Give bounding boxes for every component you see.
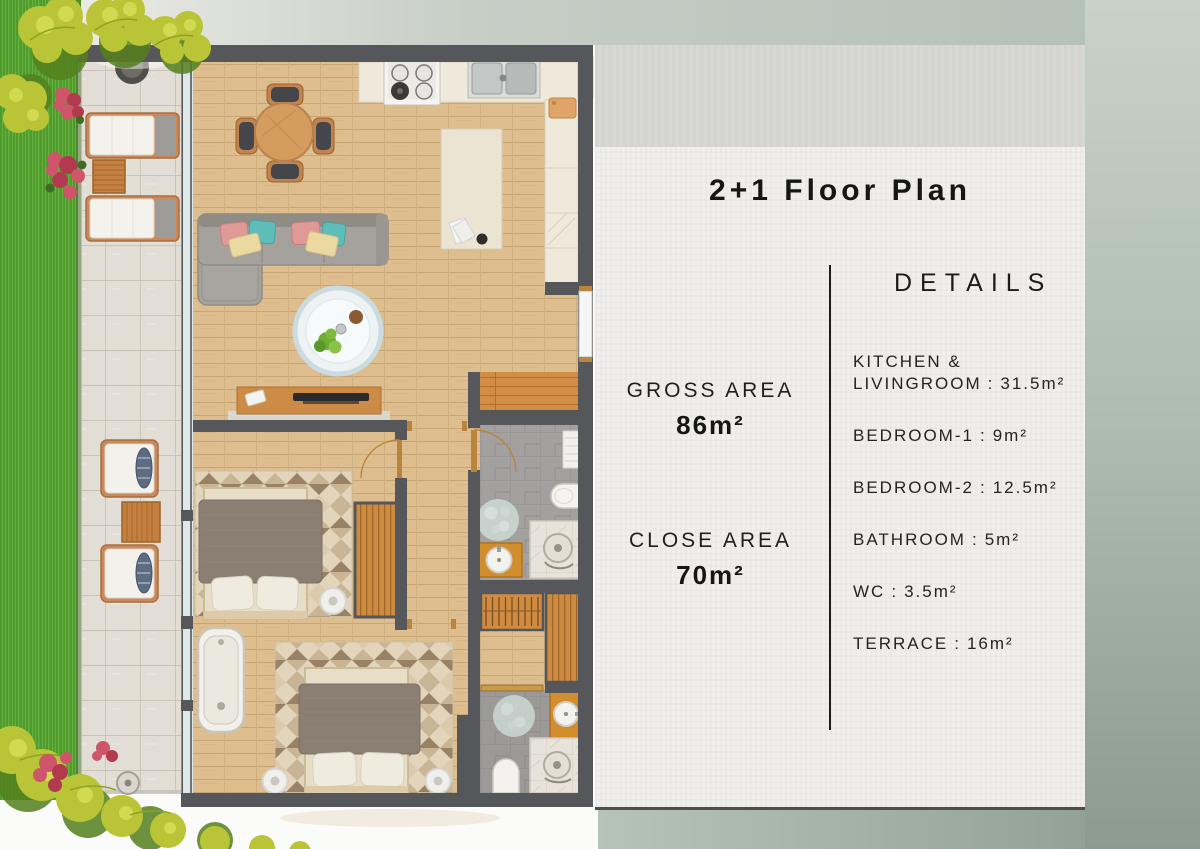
bathtub bbox=[198, 628, 244, 732]
room-value: 9m² bbox=[993, 426, 1028, 445]
glass-wall bbox=[181, 62, 193, 793]
close-area-value: 70m² bbox=[603, 560, 818, 591]
room-row-wc: WC:3.5m² bbox=[853, 581, 1078, 603]
room-row-bathroom: BATHROOM:5m² bbox=[853, 529, 1078, 551]
armchair bbox=[101, 440, 158, 497]
room-label: BATHROOM bbox=[853, 530, 966, 549]
separator: : bbox=[891, 582, 898, 601]
details-panel: 2+1 Floor Plan DETAILS GROSS AREA 86m² C… bbox=[595, 45, 1085, 810]
room-row-terrace: TERRACE:16m² bbox=[853, 633, 1078, 655]
room-value: 3.5m² bbox=[904, 582, 957, 601]
pillow bbox=[256, 576, 299, 611]
entry-door bbox=[579, 291, 592, 357]
sun-lounger bbox=[86, 196, 179, 241]
room-value: 31.5m² bbox=[1000, 374, 1065, 393]
close-area-label: CLOSE AREA bbox=[603, 529, 818, 553]
kitchen-counter-right bbox=[545, 100, 578, 292]
bedroom-1-door bbox=[397, 440, 402, 478]
separator: : bbox=[988, 374, 995, 393]
separator: : bbox=[972, 530, 979, 549]
floor-plan-page: 2+1 Floor Plan DETAILS GROSS AREA 86m² C… bbox=[0, 0, 1200, 849]
room-value: 12.5m² bbox=[993, 478, 1058, 497]
vertical-divider bbox=[829, 265, 831, 730]
separator: : bbox=[980, 426, 987, 445]
shadow-smudge bbox=[280, 809, 500, 827]
gross-area-value: 86m² bbox=[603, 410, 818, 441]
living-rug bbox=[295, 288, 381, 374]
armchair bbox=[101, 545, 158, 602]
toilet-icon bbox=[493, 759, 519, 793]
bathroom-door bbox=[471, 430, 477, 472]
room-label: BEDROOM-2 bbox=[853, 478, 974, 497]
separator: : bbox=[954, 634, 961, 653]
pillow bbox=[211, 576, 254, 612]
coffee-table bbox=[122, 502, 160, 542]
kitchen-sink bbox=[468, 60, 540, 98]
page-title: 2+1 Floor Plan bbox=[595, 174, 1085, 208]
stove-icon bbox=[384, 57, 440, 105]
room-label: WC bbox=[853, 582, 885, 601]
room-row-bedroom-2: BEDROOM-2:12.5m² bbox=[853, 477, 1078, 499]
room-label: KITCHEN & LIVINGROOM bbox=[853, 352, 982, 393]
tv-console bbox=[228, 387, 390, 420]
room-row-bedroom-1: BEDROOM-1:9m² bbox=[853, 425, 1078, 447]
room-value: 5m² bbox=[985, 530, 1020, 549]
cutting-board bbox=[549, 98, 576, 118]
bedroom-1-bed bbox=[195, 471, 352, 619]
tv-icon bbox=[293, 393, 369, 401]
bedroom-2-bed bbox=[263, 642, 454, 794]
panel-top-band bbox=[595, 45, 1085, 147]
room-row-kitchen-livingroom: KITCHEN & LIVINGROOM:31.5m² bbox=[853, 351, 1078, 395]
close-area-block: CLOSE AREA 70m² bbox=[603, 529, 818, 591]
entry-hall-floor bbox=[480, 372, 578, 412]
room-label: TERRACE bbox=[853, 634, 948, 653]
gross-area-block: GROSS AREA 86m² bbox=[603, 379, 818, 441]
bathroom-sink bbox=[477, 543, 522, 577]
bedroom-1-wardrobe bbox=[355, 503, 400, 617]
pillow bbox=[312, 752, 357, 787]
wc-sliding-door bbox=[481, 685, 543, 691]
room-value: 16m² bbox=[967, 634, 1014, 653]
pebble-mat bbox=[477, 499, 519, 541]
room-label: BEDROOM-1 bbox=[853, 426, 974, 445]
room-area-list: KITCHEN & LIVINGROOM:31.5m² BEDROOM-1:9m… bbox=[853, 351, 1078, 655]
details-heading: DETAILS bbox=[894, 269, 1052, 298]
sun-lounger bbox=[86, 113, 179, 158]
gross-area-label: GROSS AREA bbox=[603, 379, 818, 403]
shower bbox=[530, 738, 585, 793]
pebble-mat bbox=[493, 695, 535, 737]
separator: : bbox=[980, 478, 987, 497]
kitchen-island bbox=[441, 129, 502, 249]
pillow bbox=[360, 752, 404, 786]
